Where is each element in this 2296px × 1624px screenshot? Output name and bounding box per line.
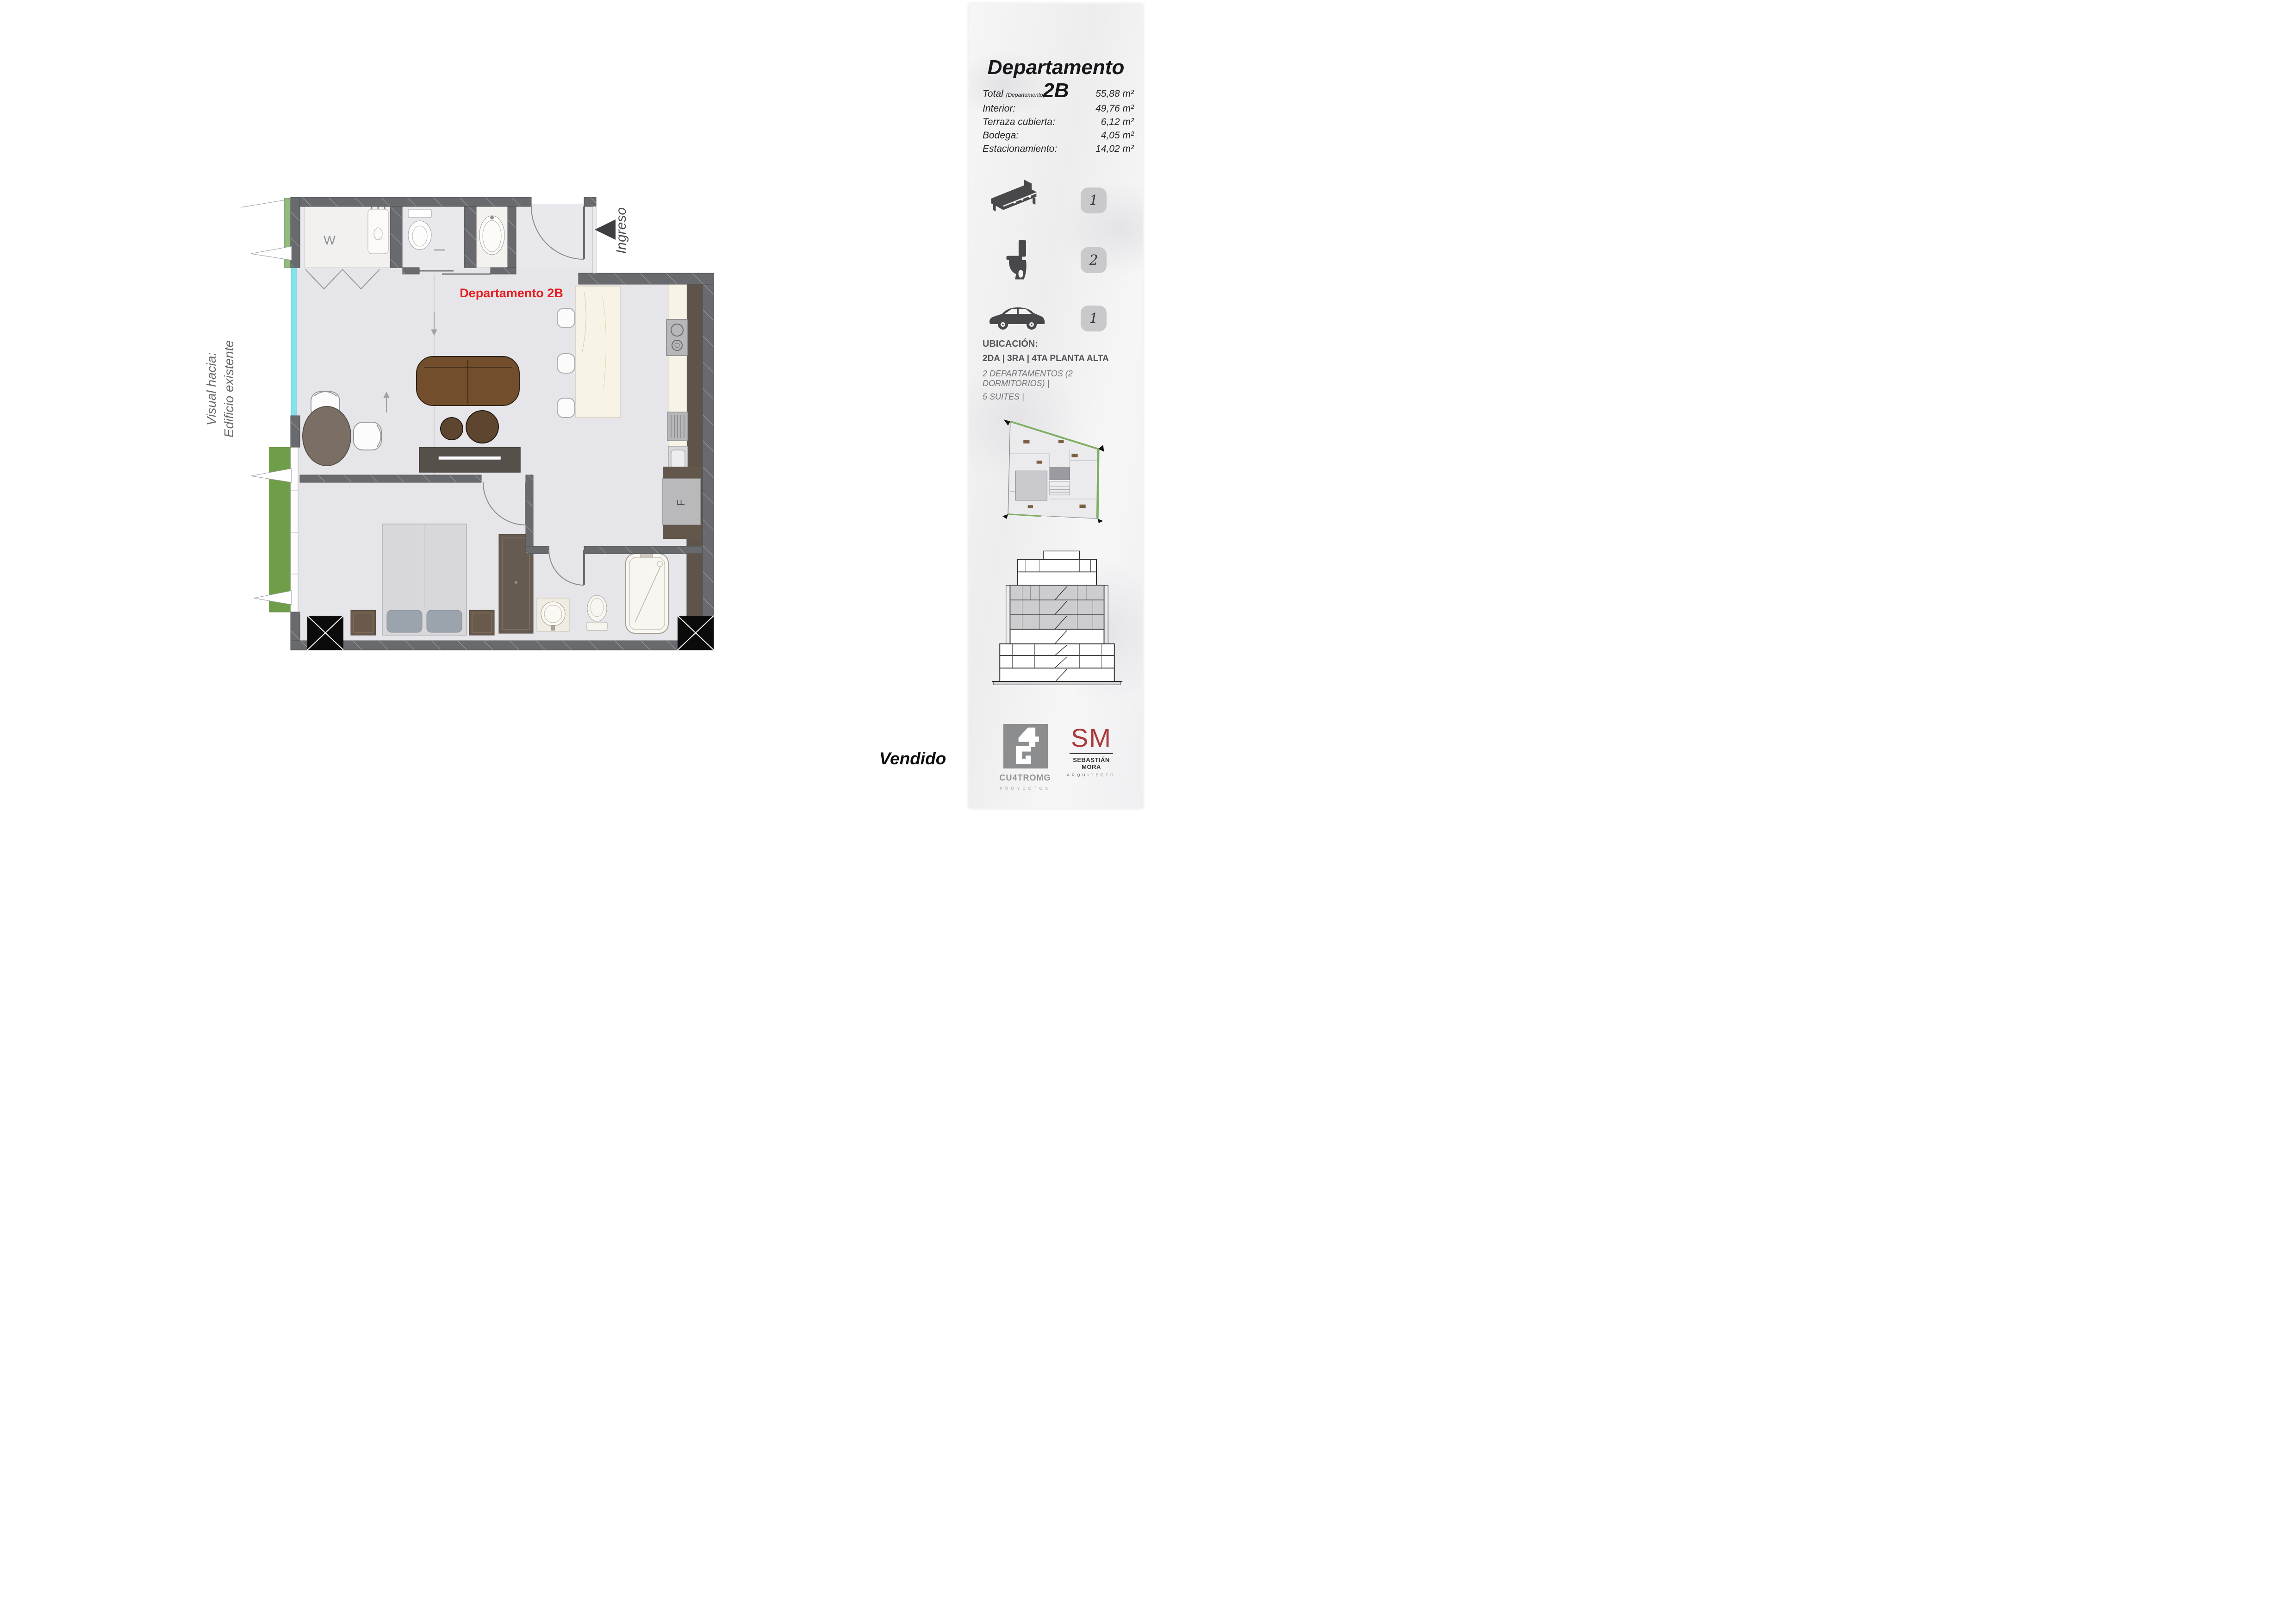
spec-row-terraza: Terraza cubierta: 6,12 m² — [983, 115, 1134, 129]
view-label-line1: Visual hacia: — [204, 352, 218, 425]
entry-threshold — [593, 206, 596, 273]
area-specs: Total (Departamento): 55,88 m² Interior:… — [983, 87, 1134, 156]
spec-label: Bodega: — [983, 129, 1019, 142]
stove — [666, 319, 688, 356]
fridge-cabinet-bottom — [663, 525, 701, 539]
unit-label: Departamento 2B — [460, 286, 563, 300]
vent-grille — [667, 412, 688, 441]
info-sidebar: Departamento2B Total (Departamento): 55,… — [969, 4, 1143, 808]
location-suites: 5 SUITES | — [983, 392, 1137, 402]
tv-console — [419, 447, 520, 472]
spec-row-bodega: Bodega: 4,05 m² — [983, 129, 1134, 142]
bathroom-toilet — [587, 595, 607, 631]
spec-label: Estacionamiento: — [983, 142, 1057, 156]
sold-status-label: Vendido — [866, 749, 959, 768]
window-glazing — [292, 268, 296, 416]
spec-row-interior: Interior: 49,76 m² — [983, 102, 1134, 115]
floor-plan: W — [0, 0, 970, 812]
spec-label: Interior: — [983, 102, 1015, 115]
entrance-arrow-icon — [595, 219, 616, 240]
kitchen-island — [576, 286, 620, 418]
bathroom-vanity — [537, 598, 569, 631]
sm-logo: SM SEBASTIÁN MORA ARQUITECTO — [1065, 725, 1118, 777]
sm-initials: SM — [1065, 725, 1118, 751]
spec-row-total: Total (Departamento): 55,88 m² — [983, 87, 1134, 102]
spec-value: 55,88 m² — [1095, 87, 1134, 100]
sm-tagline: ARQUITECTO — [1065, 773, 1118, 777]
closet-label: W — [324, 233, 336, 247]
cu4tromg-name: CU4TROMG — [979, 773, 1071, 783]
sofa — [417, 356, 519, 406]
bedroom-count-badge: 1 — [1081, 187, 1107, 213]
fridge-cabinet-top — [663, 467, 701, 479]
spec-label: Total (Departamento): — [983, 87, 1047, 102]
sm-architect-name: SEBASTIÁN MORA — [1065, 756, 1118, 770]
bed-icon — [986, 176, 1048, 223]
fridge-label: F — [675, 500, 687, 506]
parking-count-badge: 1 — [1081, 306, 1107, 331]
cu4tromg-tagline: PROYECTOS — [979, 786, 1071, 791]
building-section-thumbnail — [990, 543, 1124, 690]
spec-row-estacionamiento: Estacionamiento: 14,02 m² — [983, 142, 1134, 156]
bathroom-count-badge: 2 — [1081, 247, 1107, 273]
bathtub — [626, 550, 668, 633]
entrance-label: Ingreso — [614, 207, 629, 254]
toilet-icon — [1003, 235, 1033, 285]
location-block: UBICACIÓN: 2DA | 3RA | 4TA PLANTA ALTA 2… — [983, 339, 1137, 406]
spec-value: 49,76 m² — [1095, 102, 1134, 115]
spec-value: 4,05 m² — [1101, 129, 1134, 142]
location-floors: 2DA | 3RA | 4TA PLANTA ALTA — [983, 354, 1137, 364]
location-heading: UBICACIÓN: — [983, 339, 1137, 350]
sink-alcove — [476, 206, 508, 268]
car-icon — [987, 303, 1047, 332]
view-label-line2: Edificio existente — [222, 340, 236, 437]
spec-value: 6,12 m² — [1101, 115, 1134, 129]
brochure-page: W — [0, 0, 1148, 812]
kitchen-stools — [557, 308, 575, 418]
spec-label: Terraza cubierta: — [983, 115, 1055, 129]
spec-value: 14,02 m² — [1095, 142, 1134, 156]
apartment-title-line1: Departamento — [988, 56, 1125, 79]
cu4tromg-logo — [1003, 724, 1048, 768]
bed — [382, 524, 467, 635]
floor-plan-thumbnail — [984, 419, 1133, 536]
sm-rule — [1070, 753, 1113, 754]
closet-room — [305, 205, 390, 268]
location-units: 2 DEPARTAMENTOS (2 DORMITORIOS) | — [983, 369, 1137, 388]
